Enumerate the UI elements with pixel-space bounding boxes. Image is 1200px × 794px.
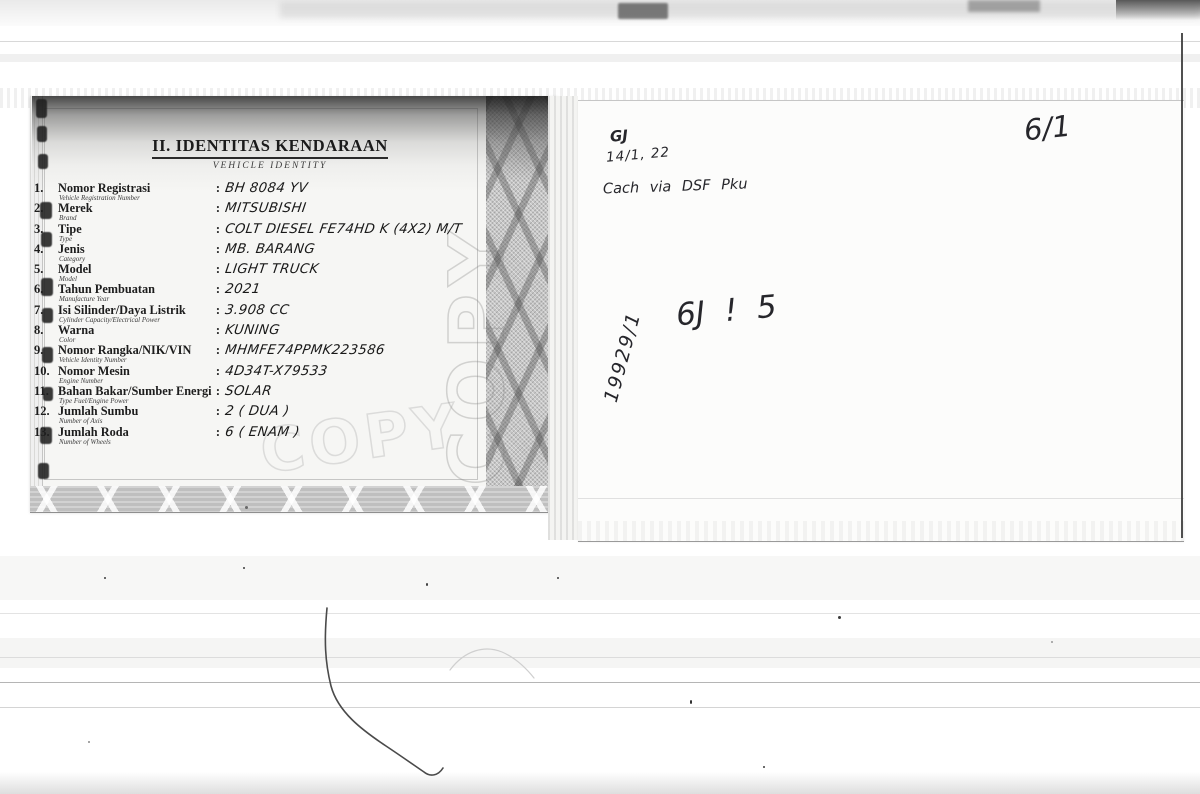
field-label-group: Nomor Rangka/NIK/VIN Vehicle Identity Nu… (58, 344, 210, 364)
page-right-edge-line (1181, 33, 1183, 538)
vehicle-field-row: 9. Nomor Rangka/NIK/VIN Vehicle Identity… (34, 344, 482, 364)
scan-streak (0, 638, 1200, 668)
vehicle-field-row: 2. Merek Brand : MITSUBISHI (34, 202, 482, 222)
scan-streak (0, 772, 1200, 794)
field-value: MB. BARANG (224, 243, 482, 257)
speck (426, 583, 428, 586)
speck (245, 506, 248, 509)
scan-streak (968, 0, 1040, 12)
field-label: Isi Silinder/Daya Listrik (58, 304, 210, 317)
pen-scribble (300, 600, 560, 790)
field-number: 1. (34, 182, 58, 195)
punch-mark (41, 232, 52, 247)
field-value: LIGHT TRUCK (224, 263, 482, 277)
field-label-group: Nomor Mesin Engine Number (58, 365, 210, 385)
vehicle-field-row: 6. Tahun Pembuatan Manufacture Year : 20… (34, 283, 482, 303)
vehicle-fields-list: 1. Nomor Registrasi Vehicle Registration… (34, 182, 482, 446)
vehicle-field-row: 4. Jenis Category : MB. BARANG (34, 243, 482, 263)
field-label-group: Jumlah Sumbu Number of Axis (58, 405, 210, 425)
field-number: 12. (34, 405, 58, 418)
field-value: 2 ( DUA ) (224, 405, 482, 419)
scan-line (0, 657, 1200, 658)
field-value: 6 ( ENAM ) (224, 426, 482, 440)
vehicle-field-row: 5. Model Model : LIGHT TRUCK (34, 263, 482, 283)
scan-line (0, 707, 1200, 708)
scanned-document-page: COPY COPY II. IDENTITAS KENDARAAN VEHICL… (0, 0, 1200, 794)
handwritten-payment-note: Cach via DSF Pku (603, 176, 748, 197)
notes-page: GJ 14/1, 22 Cach via DSF Pku 6/1 6J ! 5 … (578, 100, 1184, 541)
section-subtitle: VEHICLE IDENTITY (90, 161, 450, 171)
speck (838, 616, 841, 619)
vehicle-field-row: 13. Jumlah Roda Number of Wheels : 6 ( E… (34, 426, 482, 446)
field-label: Merek (58, 202, 210, 215)
scan-streak (1116, 0, 1200, 20)
field-label: Jumlah Roda (58, 426, 210, 439)
field-value: BH 8084 YV (224, 182, 482, 196)
section-title: II. IDENTITAS KENDARAAN (152, 136, 388, 159)
scan-line (0, 682, 1200, 683)
handwritten-date-note: 14/1, 22 (605, 144, 670, 166)
punch-mark (38, 154, 48, 169)
punch-mark (42, 308, 53, 323)
vehicle-field-row: 1. Nomor Registrasi Vehicle Registration… (34, 182, 482, 202)
handwritten-monogram: GJ (609, 126, 628, 145)
punch-mark (37, 126, 47, 142)
punch-mark (40, 202, 52, 219)
field-label-group: Tipe Type (58, 223, 210, 243)
vehicle-field-row: 10. Nomor Mesin Engine Number : 4D34T-X7… (34, 365, 482, 385)
handwritten-vertical-note: 19929/1 (600, 309, 645, 404)
vehicle-identity-card: COPY COPY II. IDENTITAS KENDARAAN VEHICL… (30, 96, 558, 512)
field-label-group: Nomor Registrasi Vehicle Registration Nu… (58, 182, 210, 202)
vehicle-field-row: 3. Tipe Type : COLT DIESEL FE74HD K (4X2… (34, 223, 482, 243)
scan-streak (280, 2, 1200, 18)
vehicle-field-row: 7. Isi Silinder/Daya Listrik Cylinder Ca… (34, 304, 482, 324)
field-value: COLT DIESEL FE74HD K (4X2) M/T (224, 223, 482, 237)
section-header: II. IDENTITAS KENDARAAN VEHICLE IDENTITY (90, 136, 450, 171)
speck (763, 766, 765, 768)
speck (104, 577, 106, 579)
punch-mark (36, 99, 47, 118)
field-number: 8. (34, 324, 58, 337)
field-value: MHMFE74PPMK223586 (224, 344, 482, 358)
field-label-group: Warna Color (58, 324, 210, 344)
field-label-group: Bahan Bakar/Sumber Energi Type Fuel/Engi… (58, 385, 210, 405)
page-bottom-edge (578, 521, 1184, 542)
field-label: Warna (58, 324, 210, 337)
field-number: 5. (34, 263, 58, 276)
field-label-group: Jumlah Roda Number of Wheels (58, 426, 210, 446)
field-label-group: Model Model (58, 263, 210, 283)
field-label-group: Jenis Category (58, 243, 210, 263)
handwritten-page-number: 6/1 (1022, 109, 1072, 148)
field-value: SOLAR (224, 385, 482, 399)
scan-line (0, 41, 1200, 42)
scan-streak (0, 556, 1200, 600)
punch-mark (40, 427, 52, 444)
field-value: MITSUBISHI (224, 202, 482, 216)
field-value: 4D34T-X79533 (224, 365, 482, 379)
speck (88, 741, 90, 743)
scan-streak (618, 3, 668, 19)
vehicle-field-row: 8. Warna Color : KUNING (34, 324, 482, 344)
field-value: KUNING (224, 324, 482, 338)
field-label-group: Merek Brand (58, 202, 210, 222)
card-bottom-border-pattern (30, 486, 548, 513)
field-label: Model (58, 263, 210, 276)
speck (557, 577, 559, 579)
field-label-group: Isi Silinder/Daya Listrik Cylinder Capac… (58, 304, 210, 324)
field-label: Jenis (58, 243, 210, 256)
field-label-group: Tahun Pembuatan Manufacture Year (58, 283, 210, 303)
scan-streak (0, 54, 1200, 62)
speck (243, 567, 245, 569)
field-value: 3.908 CC (224, 304, 482, 318)
speck (690, 700, 692, 704)
scan-line (578, 498, 1184, 499)
page-fold-gutter (548, 96, 578, 540)
field-label: Nomor Mesin (58, 365, 210, 378)
scan-line (0, 613, 1200, 614)
punch-mark (41, 278, 53, 296)
punch-mark (43, 387, 53, 401)
speck (1051, 641, 1053, 643)
field-sublabel: Number of Wheels (58, 439, 210, 446)
field-value: 2021 (224, 283, 482, 297)
field-label: Tipe (58, 223, 210, 236)
handwritten-center-note: 6J ! 5 (675, 289, 778, 334)
vehicle-field-row: 11. Bahan Bakar/Sumber Energi Type Fuel/… (34, 385, 482, 405)
punch-mark (42, 347, 53, 363)
field-number: 10. (34, 365, 58, 378)
vehicle-field-row: 12. Jumlah Sumbu Number of Axis : 2 ( DU… (34, 405, 482, 425)
punch-mark (38, 463, 49, 479)
